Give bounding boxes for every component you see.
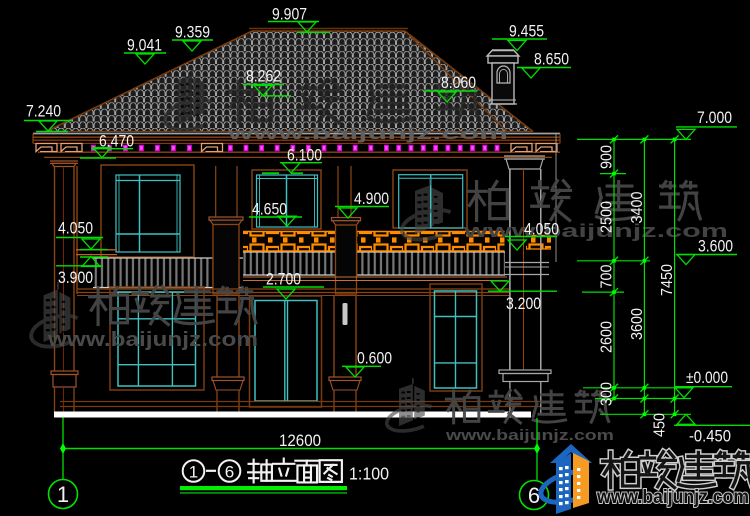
svg-text:4.900: 4.900 bbox=[354, 190, 389, 208]
svg-text:300: 300 bbox=[599, 382, 616, 406]
svg-text:6: 6 bbox=[528, 483, 540, 508]
svg-text:7.000: 7.000 bbox=[697, 109, 732, 127]
svg-text:2600: 2600 bbox=[599, 321, 616, 353]
svg-text:2500: 2500 bbox=[599, 201, 616, 233]
svg-text:www.baijunjz.com: www.baijunjz.com bbox=[47, 329, 258, 351]
svg-text:7450: 7450 bbox=[659, 264, 676, 296]
svg-text:6.100: 6.100 bbox=[287, 147, 322, 165]
svg-text:8.060: 8.060 bbox=[441, 74, 476, 92]
svg-text:±0.000: ±0.000 bbox=[686, 369, 728, 387]
svg-text:9.359: 9.359 bbox=[175, 24, 210, 42]
svg-text:-0.450: -0.450 bbox=[689, 428, 731, 446]
svg-text:1: 1 bbox=[57, 482, 69, 507]
svg-text:1:100: 1:100 bbox=[349, 464, 389, 484]
svg-text:7.240: 7.240 bbox=[26, 103, 61, 121]
svg-text:9.455: 9.455 bbox=[509, 23, 544, 41]
svg-text:3.900: 3.900 bbox=[58, 269, 93, 287]
svg-text:www.baijunjz.com: www.baijunjz.com bbox=[226, 126, 508, 143]
svg-text:8.650: 8.650 bbox=[534, 51, 569, 69]
svg-text:www.baijunjz.com: www.baijunjz.com bbox=[596, 487, 749, 508]
svg-text:www.baijunjz.com: www.baijunjz.com bbox=[462, 221, 728, 241]
svg-text:6: 6 bbox=[225, 463, 234, 482]
svg-text:8.262: 8.262 bbox=[246, 68, 281, 86]
svg-text:www.baijunjz.com: www.baijunjz.com bbox=[445, 427, 614, 444]
svg-text:4.050: 4.050 bbox=[58, 220, 93, 238]
svg-text:2.700: 2.700 bbox=[266, 271, 301, 289]
svg-text:700: 700 bbox=[599, 264, 616, 288]
svg-text:900: 900 bbox=[599, 145, 616, 169]
svg-text:3.600: 3.600 bbox=[698, 238, 733, 256]
svg-text:9.041: 9.041 bbox=[127, 37, 162, 55]
svg-text:3600: 3600 bbox=[629, 308, 646, 340]
svg-text:12600: 12600 bbox=[279, 432, 321, 450]
svg-text:0.600: 0.600 bbox=[357, 350, 392, 368]
svg-text:3.200: 3.200 bbox=[506, 295, 541, 313]
svg-text:450: 450 bbox=[651, 413, 668, 437]
svg-text:1: 1 bbox=[189, 463, 198, 482]
svg-text:3400: 3400 bbox=[629, 191, 646, 223]
